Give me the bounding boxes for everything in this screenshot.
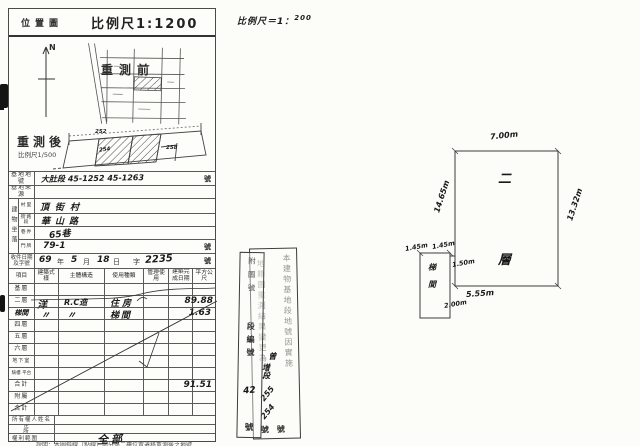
table-row-street: 街路段 華山路 xyxy=(19,213,215,226)
attribute-table: 基地地號 大肚段 45-1252 45-1263 號 基地來源 建物坐落 村里 xyxy=(9,171,215,444)
north-label: N xyxy=(49,43,56,52)
lot-label: 基地地號 xyxy=(9,172,35,185)
col-item: 項目 xyxy=(9,269,35,283)
table-row-village: 村里 頂街村 xyxy=(19,199,215,213)
col-structure: 主體構造 xyxy=(59,269,106,283)
building-location-label: 建物坐落 xyxy=(9,199,19,253)
row-floor-4: 四層 xyxy=(9,319,215,331)
source-label: 基地來源 xyxy=(9,186,35,198)
plan-scale-note: 比例尺＝1：200 xyxy=(237,14,312,27)
day-unit: 日 xyxy=(113,257,120,267)
after-sketch xyxy=(53,123,206,169)
scan-artifact xyxy=(0,104,4,110)
col-management: 管理使用 xyxy=(144,269,170,283)
door-label: 門牌 xyxy=(19,240,35,253)
row-total-2: 合計 xyxy=(9,403,215,415)
row-owner-name: 所有權人姓名 xyxy=(9,415,215,424)
row-floor-5: 五層 xyxy=(9,331,215,343)
table-row-lot: 基地地號 大肚段 45-1252 45-1263 號 xyxy=(9,171,215,185)
grid-header-row: 項目 建築式樣 主體構造 使用種類 管理使用 建築完成日期 平方公尺 xyxy=(9,268,215,283)
scanned-survey-document: 位置圖 比例尺1:1200 xyxy=(0,0,640,446)
receipt-suffix: 號 xyxy=(204,256,211,266)
stamp-hand-zeng: 曾 xyxy=(268,351,276,362)
attach-stamp-suffix: 號 xyxy=(245,421,254,433)
door-value: 79-1 xyxy=(43,241,66,251)
village-value: 頂街村 xyxy=(40,200,85,213)
col-completion-date: 建築完成日期 xyxy=(169,269,193,283)
table-row-receipt: 收件日期及字號 69 年 5 月 18 日 字 2235 號 xyxy=(9,253,215,268)
attach-stamp-label-2: 段編號 xyxy=(245,322,257,361)
table-row-source: 基地來源 xyxy=(9,185,215,198)
row-annex: 附屬 xyxy=(9,391,215,403)
row-arcade: 騎樓 平台 xyxy=(9,367,215,379)
parcel-number: 258 xyxy=(166,145,177,151)
door-suffix: 號 xyxy=(204,242,211,252)
zi-unit: 字 xyxy=(133,257,140,267)
row-floor-2: 二層 洋 R.C造 住房 89.88 xyxy=(9,295,215,307)
parcel-number: 252 xyxy=(95,129,106,135)
row-basement: 地下室 xyxy=(9,355,215,367)
table-row-lane: 巷弄 65巷 xyxy=(19,226,215,239)
location-map-title: 位置圖 xyxy=(21,16,63,29)
col-square-meters: 平方公尺 xyxy=(193,269,215,283)
table-row-door: 門牌 79-1 號 xyxy=(19,239,215,253)
receipt-year: 69 xyxy=(39,255,52,265)
row-floor-6: 六層 xyxy=(9,343,215,355)
attachment-number-stamp: 附圖號 段編號 42 號 xyxy=(236,252,264,438)
stairwell-label: 梯間 xyxy=(428,262,436,290)
after-resurvey-scale: 比例尺1/500 xyxy=(18,149,56,159)
lot-value: 大肚段 45-1252 45-1263 xyxy=(41,172,144,185)
attach-stamp-number: 42 xyxy=(243,386,256,397)
month-unit: 月 xyxy=(83,257,90,267)
plan-scale-value: 200 xyxy=(294,14,312,22)
row-stairwell: 梯間 〃 〃 梯間 1.63 xyxy=(9,307,215,319)
after-resurvey-label: 重測後 xyxy=(17,133,65,150)
location-map-area: N 重測前 重測後 比例尺1/500 252 254 258 xyxy=(9,37,215,173)
lane-label: 巷弄 xyxy=(19,227,35,239)
scan-artifact xyxy=(0,295,5,312)
building-location-group: 建物坐落 村里 頂街村 街路段 華山路 xyxy=(9,198,215,253)
before-resurvey-label: 重測前 xyxy=(101,61,155,78)
floor2-area: 89.88 xyxy=(185,296,213,306)
attach-stamp-label: 附圖號 xyxy=(246,257,258,298)
north-compass xyxy=(38,47,55,117)
year-unit: 年 xyxy=(57,257,64,267)
before-sketch xyxy=(86,43,189,126)
receipt-day: 18 xyxy=(97,255,110,265)
location-map-scale: 比例尺1:1200 xyxy=(91,13,198,32)
survey-form: 位置圖 比例尺1:1200 xyxy=(8,8,216,442)
street-label: 街路段 xyxy=(19,214,35,226)
receipt-month: 5 xyxy=(71,255,77,265)
row-total: 合計 91.51 xyxy=(9,379,215,391)
lot-suffix: 號 xyxy=(204,174,211,184)
col-use-type: 使用種類 xyxy=(105,269,144,283)
col-style: 建築式樣 xyxy=(35,269,59,283)
village-label: 村里 xyxy=(19,199,35,213)
receipt-label: 收件日期及字號 xyxy=(9,254,35,268)
room-label-second-floor: 二層 xyxy=(498,168,511,268)
receipt-number: 2235 xyxy=(145,253,174,266)
footnote: 說明：本圖斜線（點線）部分係二樓位置遷移重測後之地號…… xyxy=(36,440,306,446)
form-header: 位置圖 比例尺1:1200 xyxy=(9,9,215,37)
row-floor-1: 基層 xyxy=(9,283,215,295)
total-area: 91.51 xyxy=(184,380,212,390)
stair-area: 1.63 xyxy=(189,308,211,318)
stamp-text-col-1: 本建物基地段地號因實施 xyxy=(281,254,294,370)
